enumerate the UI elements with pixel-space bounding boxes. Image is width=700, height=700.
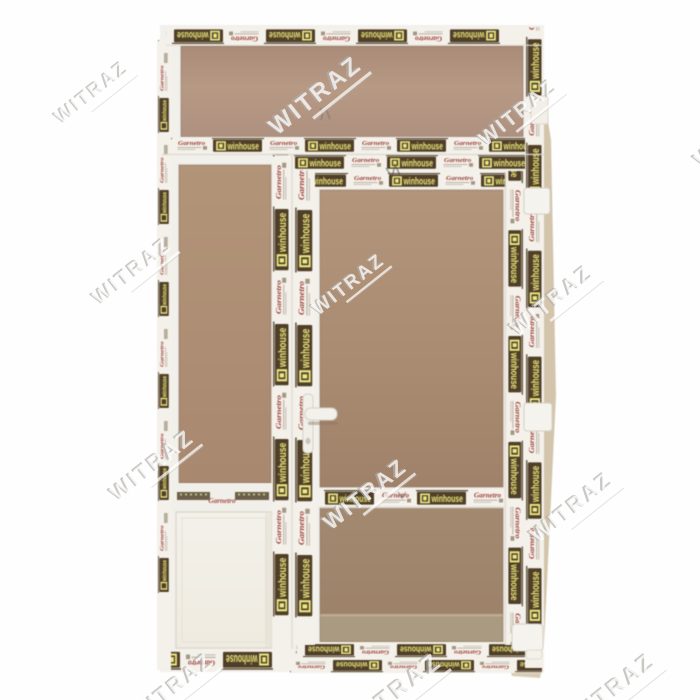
svg-text:Garnetro: Garnetro [208, 497, 236, 505]
